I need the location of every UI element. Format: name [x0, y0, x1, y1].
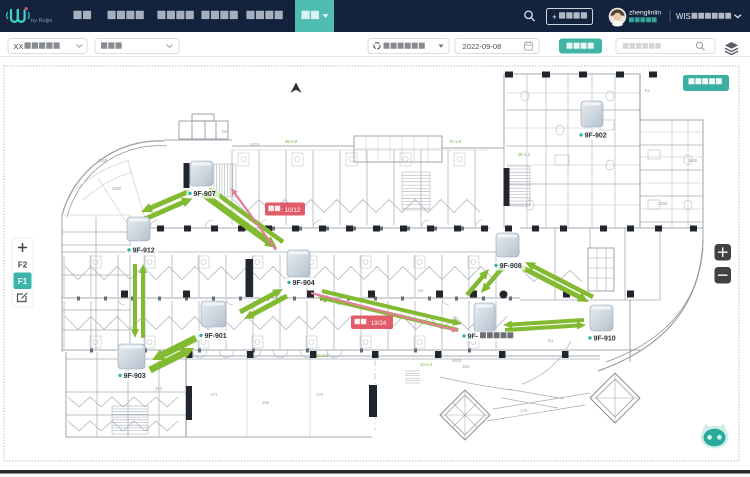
svg-text:9F-908: 9F-908: [500, 263, 522, 270]
svg-text:+: +: [552, 13, 557, 22]
svg-text:XX: XX: [14, 42, 24, 51]
svg-text:176: 176: [316, 392, 324, 397]
svg-text:178: 178: [520, 408, 528, 413]
svg-text:174: 174: [210, 392, 218, 397]
svg-text:F2: F2: [18, 261, 28, 270]
svg-text:: 10/12: : 10/12: [281, 207, 300, 214]
svg-text:9F-904: 9F-904: [293, 280, 315, 287]
svg-text:9F-901: 9F-901: [205, 333, 227, 340]
svg-text:2800: 2800: [112, 186, 122, 191]
svg-text:3150: 3150: [658, 201, 668, 206]
svg-text:dk-0.9: dk-0.9: [285, 139, 298, 144]
svg-text:165: 165: [262, 400, 270, 405]
svg-text:WIS: WIS: [676, 12, 691, 21]
svg-text:K1: K1: [645, 88, 651, 93]
svg-text:fx-1.8: fx-1.8: [450, 139, 462, 144]
svg-text:D1: D1: [548, 338, 554, 343]
svg-text:2800: 2800: [688, 158, 698, 163]
svg-text:dk-1.2: dk-1.2: [518, 152, 531, 157]
svg-text:3150: 3150: [98, 158, 108, 163]
svg-text:9F-903: 9F-903: [124, 373, 146, 380]
svg-text:D2: D2: [222, 129, 228, 134]
svg-text:D4: D4: [418, 288, 424, 293]
svg-text:2022-09-08: 2022-09-08: [463, 42, 502, 51]
svg-text:bx-2.2: bx-2.2: [316, 353, 329, 358]
svg-text:162: 162: [155, 386, 163, 391]
svg-text:3420: 3420: [452, 358, 462, 363]
svg-text:9F-907: 9F-907: [194, 191, 216, 198]
svg-text:9F-902: 9F-902: [585, 133, 607, 140]
svg-text:zhenglinlin: zhenglinlin: [629, 10, 661, 17]
svg-text:: 19/24: : 19/24: [367, 320, 386, 327]
svg-text:153: 153: [462, 364, 470, 369]
svg-text:9F-912: 9F-912: [133, 248, 155, 255]
svg-text:9F-910: 9F-910: [594, 336, 616, 343]
svg-text:by Ruijie: by Ruijie: [31, 18, 52, 24]
svg-text:3420: 3420: [250, 142, 260, 147]
svg-text:F1: F1: [18, 277, 28, 286]
svg-text:sb-0.4: sb-0.4: [420, 362, 433, 367]
svg-text:9F-: 9F-: [468, 334, 479, 341]
